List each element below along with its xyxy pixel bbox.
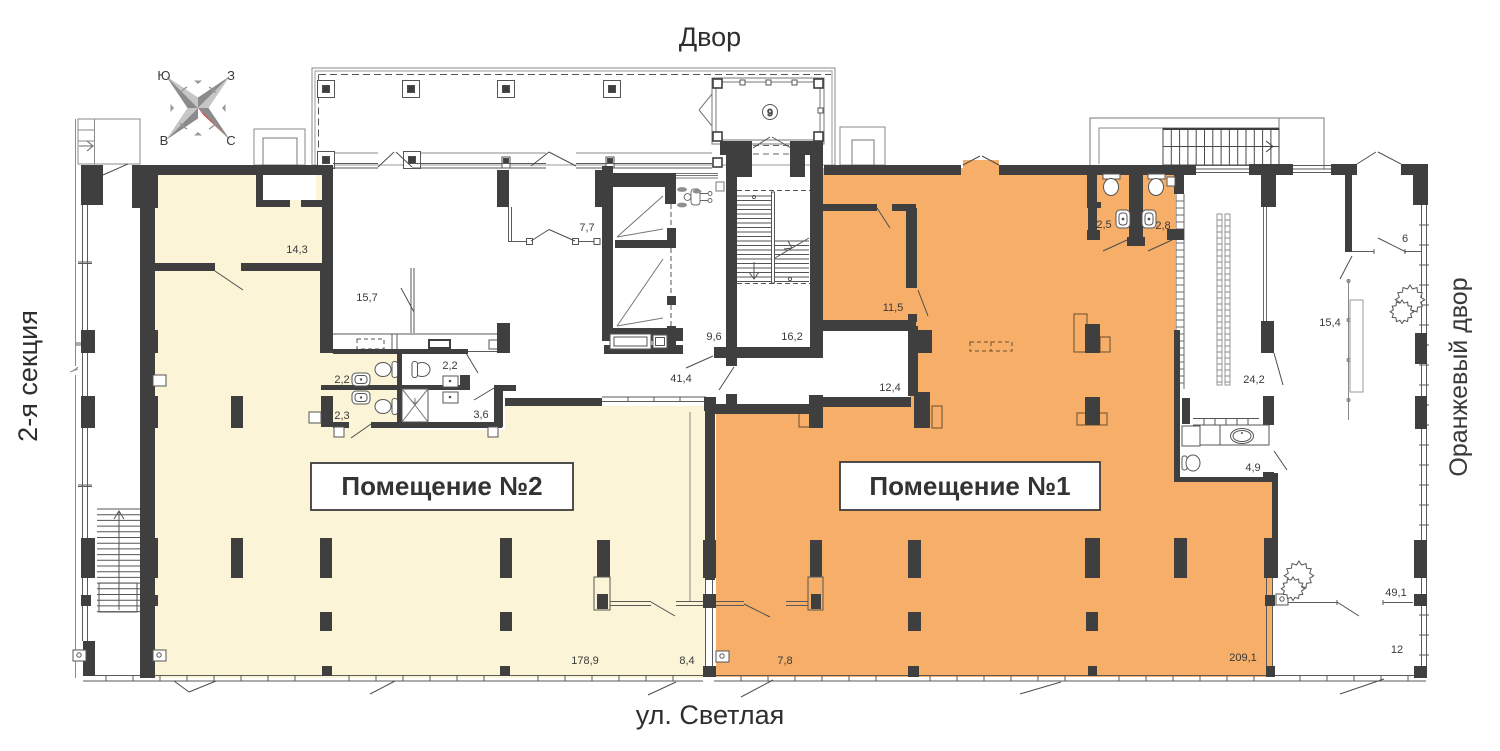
svg-text:3,6: 3,6: [473, 409, 488, 421]
svg-text:Помещение №2: Помещение №2: [341, 471, 542, 501]
svg-text:2,8: 2,8: [1155, 220, 1170, 232]
svg-text:209,1: 209,1: [1229, 652, 1257, 664]
svg-text:14,3: 14,3: [286, 244, 307, 256]
svg-text:7,8: 7,8: [777, 655, 792, 667]
svg-text:8,4: 8,4: [679, 655, 694, 667]
svg-text:49,1: 49,1: [1385, 587, 1406, 599]
svg-text:2-я секция: 2-я секция: [13, 310, 43, 442]
svg-text:ул. Светлая: ул. Светлая: [636, 700, 785, 730]
svg-text:6: 6: [1402, 233, 1408, 245]
svg-text:178,9: 178,9: [571, 655, 599, 667]
svg-text:Двор: Двор: [679, 22, 741, 52]
svg-text:2,2: 2,2: [334, 374, 349, 386]
svg-text:11,5: 11,5: [883, 302, 904, 314]
svg-text:12: 12: [1391, 644, 1403, 656]
svg-text:В: В: [160, 133, 169, 148]
svg-text:С: С: [226, 133, 235, 148]
svg-text:З: З: [227, 68, 235, 83]
svg-text:15,7: 15,7: [356, 292, 377, 304]
svg-text:Оранжевый двор: Оранжевый двор: [1445, 277, 1473, 476]
svg-text:16,2: 16,2: [781, 331, 802, 343]
svg-text:Ю: Ю: [157, 68, 170, 83]
svg-text:4,9: 4,9: [1245, 462, 1260, 474]
svg-text:2,3: 2,3: [334, 410, 349, 422]
svg-text:2,5: 2,5: [1096, 219, 1111, 231]
svg-text:9,6: 9,6: [706, 331, 721, 343]
svg-text:15,4: 15,4: [1319, 317, 1340, 329]
svg-text:24,2: 24,2: [1243, 374, 1264, 386]
svg-text:12,4: 12,4: [879, 382, 900, 394]
svg-text:41,4: 41,4: [670, 373, 691, 385]
svg-text:Помещение №1: Помещение №1: [869, 471, 1070, 501]
svg-text:7,7: 7,7: [579, 222, 594, 234]
svg-text:9: 9: [767, 108, 773, 119]
svg-text:2,2: 2,2: [442, 360, 457, 372]
